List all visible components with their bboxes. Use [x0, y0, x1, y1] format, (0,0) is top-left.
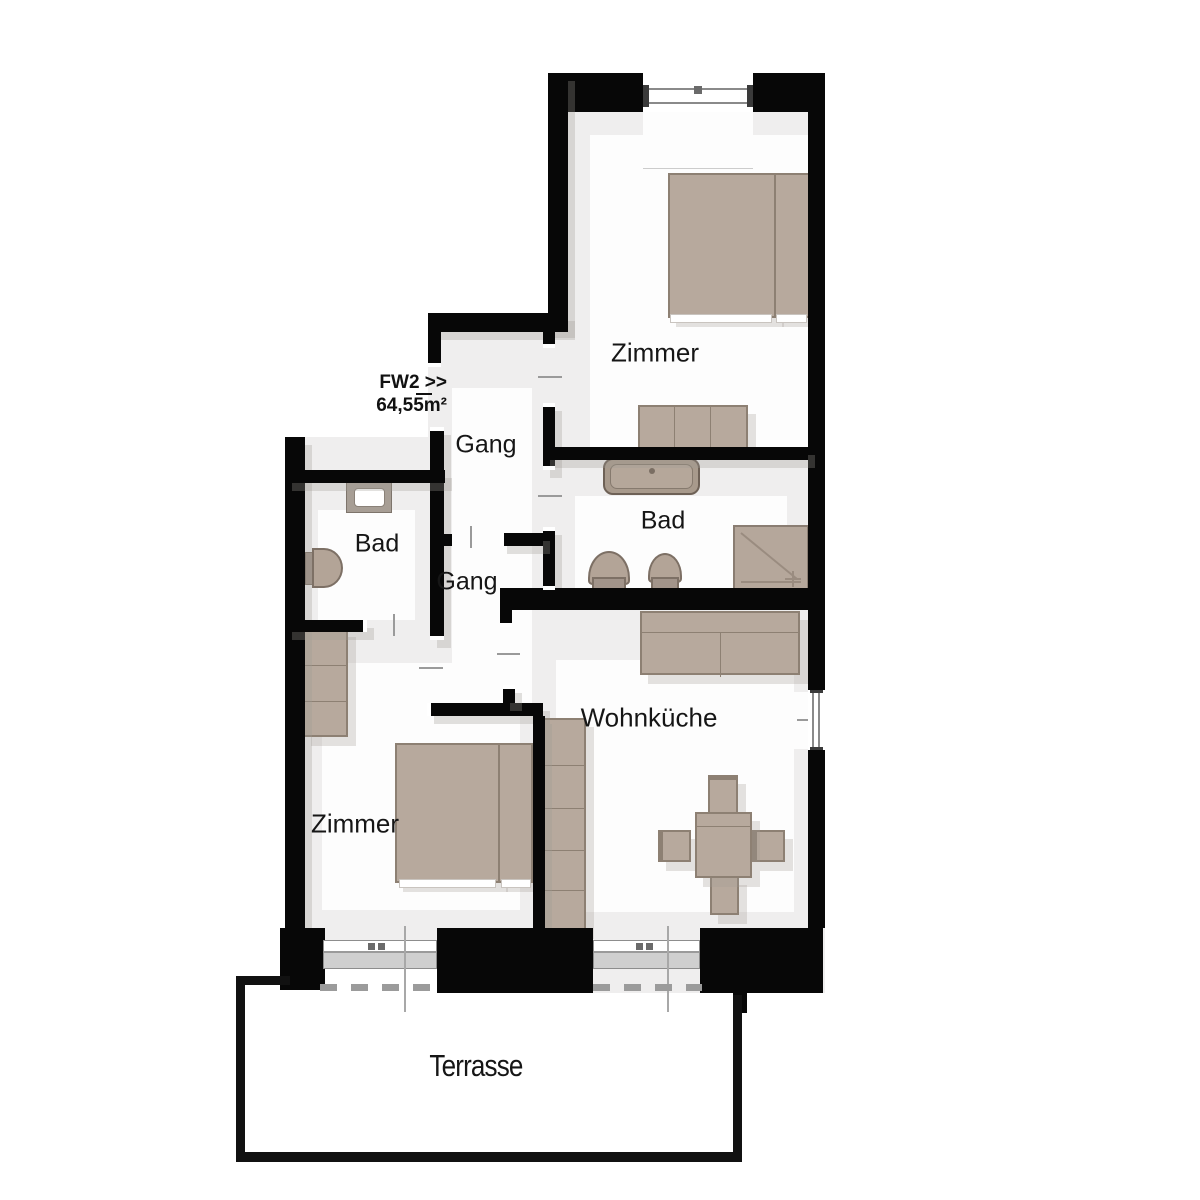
wall-outer-left	[285, 437, 305, 940]
room-area-wohnkueche	[556, 660, 794, 912]
door-opening-marker	[497, 653, 520, 655]
wall	[428, 332, 441, 367]
bed-mattress	[668, 173, 776, 318]
room-label-zimmer-top: Zimmer	[611, 338, 699, 369]
wall-cap	[503, 685, 515, 689]
terrace-border	[236, 976, 245, 1160]
room-label-terrasse: Terrasse	[429, 1048, 522, 1084]
room-label-gang-lower: Gang	[436, 568, 497, 597]
dresser	[638, 405, 748, 450]
bed-side-section	[498, 743, 533, 883]
section-line	[667, 926, 669, 1012]
terrace-boundary-dashed	[593, 984, 702, 991]
room-label-wohnkueche: Wohnküche	[581, 703, 718, 734]
window	[808, 690, 825, 750]
wall	[430, 427, 444, 640]
wall	[285, 470, 445, 483]
wall	[548, 73, 568, 330]
dining-table	[695, 812, 752, 878]
terrace-border	[236, 1152, 742, 1162]
unit-area-label: 64,55m²	[329, 395, 447, 416]
bed-footboard	[670, 314, 772, 323]
sofa	[640, 611, 800, 675]
door-opening-marker	[470, 526, 472, 548]
wall-pier	[700, 928, 823, 993]
wall	[533, 716, 545, 930]
wall	[500, 533, 543, 546]
shower	[733, 525, 809, 592]
wall	[543, 447, 808, 460]
sink	[346, 480, 392, 513]
wall-cap	[543, 344, 555, 348]
wall-cap	[500, 533, 504, 546]
wardrobe	[303, 628, 348, 737]
room-label-gang-upper: Gang	[455, 431, 516, 460]
wall-cap	[428, 363, 441, 367]
unit-code-label: FW2 >>	[329, 372, 447, 393]
room-label-bad-left: Bad	[355, 530, 399, 559]
wall-cap	[430, 636, 444, 640]
door-opening-marker	[538, 495, 562, 497]
terrace-boundary-dashed	[320, 984, 438, 991]
kitchen-unit	[543, 718, 586, 930]
dining-chair	[710, 876, 739, 915]
wall	[500, 588, 825, 610]
door-opening-marker	[538, 376, 562, 378]
wall-cap	[363, 620, 367, 632]
wall-cap	[543, 586, 555, 590]
terrace-border	[733, 995, 742, 1162]
section-line	[404, 926, 406, 1012]
bed-footboard	[399, 879, 496, 888]
window-alcove	[643, 112, 753, 169]
bed-mattress	[395, 743, 500, 883]
wall	[808, 610, 825, 690]
window	[643, 73, 753, 112]
wall	[285, 620, 367, 632]
wall	[543, 527, 555, 590]
wall-pier	[437, 928, 593, 993]
door-hinge-block	[443, 534, 452, 546]
wall-cap	[543, 527, 555, 531]
dining-chair	[752, 830, 785, 862]
room-label-bad-right: Bad	[641, 507, 685, 536]
unit-label-underline	[416, 393, 432, 395]
wall-entrance	[428, 313, 568, 332]
wall	[808, 73, 825, 610]
wall-cap	[427, 703, 431, 716]
bed-footboard	[501, 879, 531, 888]
wall	[808, 750, 825, 928]
terrace-door-window	[323, 940, 437, 969]
terrace-border	[236, 976, 290, 985]
wall-cap	[543, 466, 555, 470]
wall	[427, 703, 543, 716]
wall-cap	[543, 403, 555, 407]
wall-cap	[430, 427, 444, 431]
door-opening-marker	[419, 667, 443, 669]
room-label-zimmer-bottom: Zimmer	[311, 809, 399, 840]
bed-footboard	[776, 314, 807, 323]
window-marker	[797, 719, 808, 721]
floor-plan: Zimmer Gang Bad Bad Gang Wohnküche Zimme…	[0, 0, 1200, 1200]
door-opening-marker	[393, 614, 395, 636]
wall-cap	[500, 623, 512, 627]
bathtub	[603, 458, 700, 495]
bed-side-section	[774, 173, 810, 318]
dining-chair	[658, 830, 691, 862]
dining-chair	[708, 775, 738, 814]
terrace-door-window	[593, 940, 700, 969]
